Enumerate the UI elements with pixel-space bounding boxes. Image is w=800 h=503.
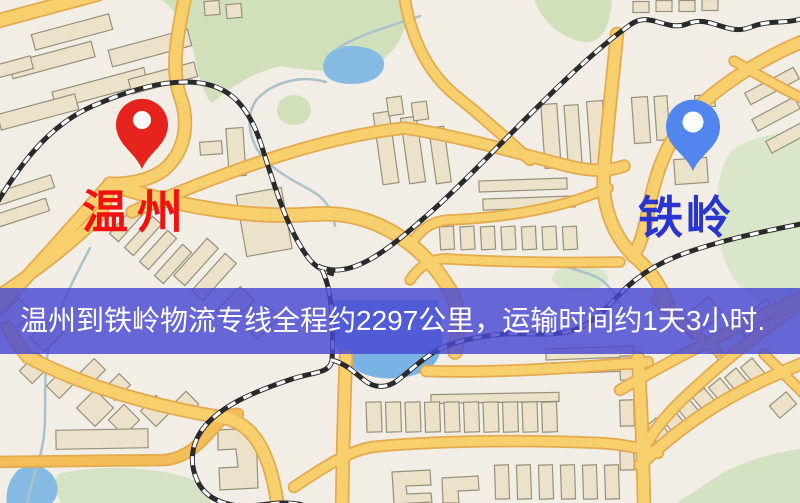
building-block xyxy=(226,3,242,18)
building-block xyxy=(702,0,718,11)
building-block xyxy=(633,2,649,13)
building-block xyxy=(411,101,428,121)
building-block xyxy=(631,96,650,143)
building-block xyxy=(460,226,475,250)
building-block xyxy=(522,402,538,433)
building-block xyxy=(541,402,557,433)
building-block xyxy=(56,429,148,450)
building-block xyxy=(501,226,516,250)
building-block xyxy=(439,226,454,250)
building-block xyxy=(444,402,460,433)
building-block xyxy=(521,226,536,250)
building-block xyxy=(604,465,619,499)
building-block xyxy=(385,402,401,433)
map-screenshot: 温州到铁岭物流专线全程约2297公里，运输时间约1天3小时. 温州 铁岭 xyxy=(0,0,800,503)
banner-text: 温州到铁岭物流专线全程约2297公里，运输时间约1天3小时. xyxy=(20,288,790,354)
building-block xyxy=(562,226,577,250)
building-block xyxy=(200,141,223,156)
destination-city-label: 铁岭 xyxy=(638,181,734,246)
building-block xyxy=(538,465,553,499)
info-banner: 温州到铁岭物流专线全程约2297公里，运输时间约1天3小时. xyxy=(0,288,800,354)
building-block xyxy=(502,402,518,433)
building-block xyxy=(480,226,495,250)
map-canvas[interactable] xyxy=(0,0,800,503)
building-block xyxy=(204,0,220,15)
building-block xyxy=(424,402,440,433)
building-block xyxy=(366,402,382,433)
building-block xyxy=(494,465,509,499)
building-block xyxy=(542,226,557,250)
origin-city-label: 温州 xyxy=(82,176,192,242)
building-block xyxy=(463,402,479,433)
building-block xyxy=(386,96,403,116)
building-block xyxy=(483,402,499,433)
building-block xyxy=(560,465,575,499)
building-block xyxy=(405,402,421,433)
building-block xyxy=(516,465,531,499)
building-block xyxy=(582,465,597,499)
building-block xyxy=(479,178,567,192)
building-block xyxy=(679,1,695,12)
building-block xyxy=(656,1,672,12)
building-block xyxy=(620,400,635,426)
